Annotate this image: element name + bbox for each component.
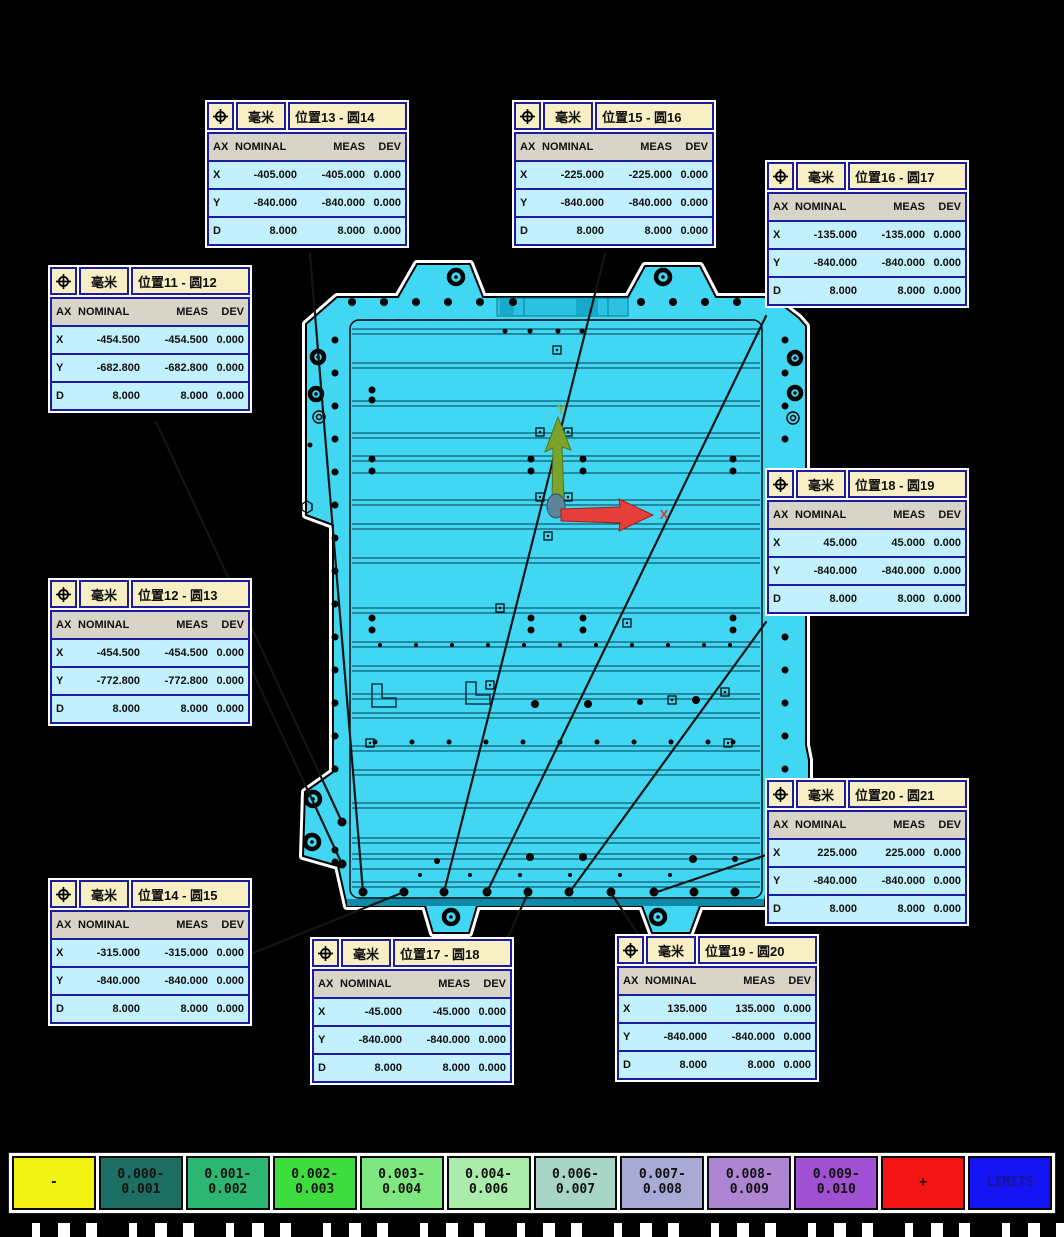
column-header: DEV bbox=[208, 619, 244, 631]
measurement-label-20[interactable]: 毫米位置20 - 圆21AXNOMINALMEASDEVX225.000225.… bbox=[765, 778, 969, 926]
legend-cell[interactable]: 0.008-0.009 bbox=[707, 1156, 791, 1210]
column-header: AX bbox=[773, 819, 795, 831]
column-header: DEV bbox=[925, 509, 961, 521]
value-cell: 8.000 bbox=[857, 593, 925, 605]
column-header: DEV bbox=[672, 141, 708, 153]
table-row: D8.0008.0000.000 bbox=[769, 278, 965, 304]
value-cell: 8.000 bbox=[542, 225, 604, 237]
value-cell: -840.000 bbox=[340, 1034, 402, 1046]
value-cell: 8.000 bbox=[78, 703, 140, 715]
value-cell: 8.000 bbox=[707, 1059, 775, 1071]
position-symbol-cell bbox=[50, 267, 77, 295]
axis-cell: X bbox=[623, 1003, 645, 1015]
label-title: 位置18 - 圆19 bbox=[848, 470, 967, 498]
axis-cell: D bbox=[56, 390, 78, 402]
value-cell: 8.000 bbox=[795, 903, 857, 915]
value-cell: 8.000 bbox=[297, 225, 365, 237]
axis-cell: Y bbox=[56, 975, 78, 987]
value-cell: -454.500 bbox=[78, 647, 140, 659]
position-icon bbox=[55, 886, 72, 903]
label-title: 位置13 - 圆14 bbox=[288, 102, 407, 130]
table-row: D8.0008.0000.000 bbox=[314, 1055, 510, 1081]
table-row: X-454.500-454.5000.000 bbox=[52, 327, 248, 353]
table-row: D8.0008.0000.000 bbox=[52, 696, 248, 722]
table-row: X-135.000-135.0000.000 bbox=[769, 222, 965, 248]
position-symbol-cell bbox=[767, 470, 794, 498]
value-cell: 0.000 bbox=[208, 362, 244, 374]
legend-cell-text: 0.008- bbox=[726, 1168, 773, 1183]
table-row: D8.0008.0000.000 bbox=[209, 218, 405, 244]
value-cell: 8.000 bbox=[78, 390, 140, 402]
column-header: MEAS bbox=[857, 201, 925, 213]
label-table: AXNOMINALMEASDEVX-135.000-135.0000.000Y-… bbox=[767, 192, 967, 306]
column-header: AX bbox=[56, 919, 78, 931]
value-cell: -405.000 bbox=[235, 169, 297, 181]
axis-cell: X bbox=[773, 229, 795, 241]
axis-cell: Y bbox=[56, 362, 78, 374]
table-row: Y-772.800-772.8000.000 bbox=[52, 668, 248, 694]
label-table: AXNOMINALMEASDEVX-225.000-225.0000.000Y-… bbox=[514, 132, 714, 246]
legend-cell-text: 0.007 bbox=[556, 1183, 595, 1198]
measurement-label-12[interactable]: 毫米位置12 - 圆13AXNOMINALMEASDEVX-454.500-45… bbox=[48, 578, 252, 726]
position-symbol-cell bbox=[50, 580, 77, 608]
legend-cell[interactable]: 0.006-0.007 bbox=[534, 1156, 618, 1210]
label-title: 位置16 - 圆17 bbox=[848, 162, 967, 190]
cropped-content-strip bbox=[0, 1223, 1064, 1237]
legend-cell-text: 0.006 bbox=[469, 1183, 508, 1198]
value-cell: -840.000 bbox=[857, 875, 925, 887]
value-cell: 8.000 bbox=[402, 1062, 470, 1074]
legend-cell[interactable]: 0.003-0.004 bbox=[360, 1156, 444, 1210]
column-header: DEV bbox=[365, 141, 401, 153]
axis-cell: D bbox=[773, 285, 795, 297]
column-header: MEAS bbox=[297, 141, 365, 153]
table-row: Y-840.000-840.0000.000 bbox=[619, 1024, 815, 1050]
label-title: 位置19 - 圆20 bbox=[698, 936, 817, 964]
value-cell: -840.000 bbox=[297, 197, 365, 209]
value-cell: 0.000 bbox=[775, 1031, 811, 1043]
axis-cell: Y bbox=[213, 197, 235, 209]
position-icon bbox=[622, 942, 639, 959]
value-cell: -840.000 bbox=[645, 1031, 707, 1043]
value-cell: 0.000 bbox=[775, 1003, 811, 1015]
legend-cell[interactable]: 0.009-0.010 bbox=[794, 1156, 878, 1210]
legend-cell[interactable]: 0.002-0.003 bbox=[273, 1156, 357, 1210]
column-header-row: AXNOMINALMEASDEV bbox=[769, 502, 965, 528]
column-header: MEAS bbox=[707, 975, 775, 987]
value-cell: 8.000 bbox=[857, 285, 925, 297]
value-cell: -840.000 bbox=[857, 257, 925, 269]
position-icon bbox=[519, 108, 536, 125]
position-symbol-cell bbox=[50, 880, 77, 908]
column-header: DEV bbox=[925, 819, 961, 831]
measurement-label-11[interactable]: 毫米位置11 - 圆12AXNOMINALMEASDEVX-454.500-45… bbox=[48, 265, 252, 413]
axis-cell: D bbox=[56, 1003, 78, 1015]
label-title: 位置14 - 圆15 bbox=[131, 880, 250, 908]
value-cell: 8.000 bbox=[78, 1003, 140, 1015]
column-header-row: AXNOMINALMEASDEV bbox=[52, 299, 248, 325]
label-table: AXNOMINALMEASDEVX135.000135.0000.000Y-84… bbox=[617, 966, 817, 1080]
value-cell: -840.000 bbox=[542, 197, 604, 209]
value-cell: 135.000 bbox=[707, 1003, 775, 1015]
value-cell: 45.000 bbox=[795, 537, 857, 549]
value-cell: -840.000 bbox=[140, 975, 208, 987]
label-table: AXNOMINALMEASDEVX45.00045.0000.000Y-840.… bbox=[767, 500, 967, 614]
table-row: X-225.000-225.0000.000 bbox=[516, 162, 712, 188]
column-header-row: AXNOMINALMEASDEV bbox=[314, 971, 510, 997]
label-header: 毫米位置16 - 圆17 bbox=[767, 162, 967, 190]
table-row: X-45.000-45.0000.000 bbox=[314, 999, 510, 1025]
report-canvas: Y X 毫米位置11 - 圆12AXNOMINALMEASDEVX-454.50… bbox=[0, 0, 1064, 1237]
unit-label: 毫米 bbox=[796, 780, 846, 808]
label-table: AXNOMINALMEASDEVX-454.500-454.5000.000Y-… bbox=[50, 610, 250, 724]
column-header: DEV bbox=[208, 919, 244, 931]
legend-cell-text: 0.009- bbox=[813, 1168, 860, 1183]
table-row: Y-840.000-840.0000.000 bbox=[314, 1027, 510, 1053]
unit-label: 毫米 bbox=[79, 880, 129, 908]
axis-cell: D bbox=[520, 225, 542, 237]
label-table: AXNOMINALMEASDEVX-405.000-405.0000.000Y-… bbox=[207, 132, 407, 246]
position-symbol-cell bbox=[207, 102, 234, 130]
value-cell: 8.000 bbox=[645, 1059, 707, 1071]
table-row: D8.0008.0000.000 bbox=[52, 996, 248, 1022]
legend-cell-text: - bbox=[50, 1176, 58, 1191]
value-cell: 0.000 bbox=[925, 875, 961, 887]
unit-label: 毫米 bbox=[646, 936, 696, 964]
axis-cell: Y bbox=[773, 257, 795, 269]
column-header: NOMINAL bbox=[795, 819, 857, 831]
column-header: AX bbox=[318, 978, 340, 990]
label-title: 位置12 - 圆13 bbox=[131, 580, 250, 608]
column-header: NOMINAL bbox=[78, 306, 140, 318]
legend-cell-text: 0.007- bbox=[639, 1168, 686, 1183]
table-row: X-315.000-315.0000.000 bbox=[52, 940, 248, 966]
measurement-label-18[interactable]: 毫米位置18 - 圆19AXNOMINALMEASDEVX45.00045.00… bbox=[765, 468, 969, 616]
column-header: AX bbox=[56, 306, 78, 318]
label-title: 位置15 - 圆16 bbox=[595, 102, 714, 130]
value-cell: 8.000 bbox=[340, 1062, 402, 1074]
value-cell: -840.000 bbox=[795, 875, 857, 887]
unit-label: 毫米 bbox=[796, 470, 846, 498]
legend-cell-text: + bbox=[919, 1176, 927, 1191]
axis-cell: Y bbox=[623, 1031, 645, 1043]
legend-cell-text: 0.006- bbox=[552, 1168, 599, 1183]
label-header: 毫米位置20 - 圆21 bbox=[767, 780, 967, 808]
position-icon bbox=[772, 476, 789, 493]
table-row: X45.00045.0000.000 bbox=[769, 530, 965, 556]
value-cell: 0.000 bbox=[672, 197, 708, 209]
axis-cell: Y bbox=[318, 1034, 340, 1046]
value-cell: 0.000 bbox=[925, 537, 961, 549]
legend-cell-text: 0.009 bbox=[730, 1183, 769, 1198]
part-bottom-band bbox=[347, 899, 764, 906]
table-row: D8.0008.0000.000 bbox=[769, 586, 965, 612]
label-header: 毫米位置17 - 圆18 bbox=[312, 939, 512, 967]
axis-cell: D bbox=[56, 703, 78, 715]
column-header: AX bbox=[773, 509, 795, 521]
axis-cell: D bbox=[773, 593, 795, 605]
position-icon bbox=[772, 168, 789, 185]
value-cell: -135.000 bbox=[857, 229, 925, 241]
value-cell: 135.000 bbox=[645, 1003, 707, 1015]
measurement-label-14[interactable]: 毫米位置14 - 圆15AXNOMINALMEASDEVX-315.000-31… bbox=[48, 878, 252, 1026]
position-symbol-cell bbox=[514, 102, 541, 130]
value-cell: 225.000 bbox=[857, 847, 925, 859]
value-cell: 225.000 bbox=[795, 847, 857, 859]
column-header: MEAS bbox=[140, 619, 208, 631]
value-cell: 0.000 bbox=[365, 169, 401, 181]
axis-cell: X bbox=[773, 537, 795, 549]
legend-cell-text: 0.002 bbox=[208, 1183, 247, 1198]
legend-cell-text: 0.008 bbox=[643, 1183, 682, 1198]
table-row: D8.0008.0000.000 bbox=[769, 896, 965, 922]
column-header: MEAS bbox=[857, 819, 925, 831]
position-icon bbox=[212, 108, 229, 125]
label-title: 位置17 - 圆18 bbox=[393, 939, 512, 967]
value-cell: 0.000 bbox=[365, 225, 401, 237]
column-header: DEV bbox=[470, 978, 506, 990]
value-cell: 8.000 bbox=[140, 1003, 208, 1015]
measurement-label-17[interactable]: 毫米位置17 - 圆18AXNOMINALMEASDEVX-45.000-45.… bbox=[310, 937, 514, 1085]
value-cell: 0.000 bbox=[672, 169, 708, 181]
value-cell: -682.800 bbox=[78, 362, 140, 374]
value-cell: -840.000 bbox=[795, 565, 857, 577]
value-cell: 8.000 bbox=[795, 285, 857, 297]
value-cell: -840.000 bbox=[604, 197, 672, 209]
column-header: MEAS bbox=[857, 509, 925, 521]
position-symbol-cell bbox=[767, 780, 794, 808]
y-axis-label: Y bbox=[556, 401, 566, 417]
table-row: D8.0008.0000.000 bbox=[516, 218, 712, 244]
column-header: DEV bbox=[208, 306, 244, 318]
position-symbol-cell bbox=[312, 939, 339, 967]
value-cell: 0.000 bbox=[925, 565, 961, 577]
color-scale-legend: -0.000-0.0010.001-0.0020.002-0.0030.003-… bbox=[8, 1152, 1056, 1214]
value-cell: -772.800 bbox=[78, 675, 140, 687]
label-header: 毫米位置13 - 圆14 bbox=[207, 102, 407, 130]
legend-cell-text: 0.001 bbox=[121, 1183, 160, 1198]
position-icon bbox=[317, 945, 334, 962]
column-header: AX bbox=[213, 141, 235, 153]
legend-cell-text: 0.010 bbox=[817, 1183, 856, 1198]
axis-cell: D bbox=[318, 1062, 340, 1074]
value-cell: -405.000 bbox=[297, 169, 365, 181]
label-title: 位置20 - 圆21 bbox=[848, 780, 967, 808]
column-header: AX bbox=[773, 201, 795, 213]
value-cell: 0.000 bbox=[208, 947, 244, 959]
axis-cell: D bbox=[213, 225, 235, 237]
legend-cell[interactable]: 0.001-0.002 bbox=[186, 1156, 270, 1210]
legend-cell-text: 0.002- bbox=[291, 1168, 338, 1183]
column-header: MEAS bbox=[402, 978, 470, 990]
unit-label: 毫米 bbox=[543, 102, 593, 130]
column-header: DEV bbox=[925, 201, 961, 213]
value-cell: -454.500 bbox=[140, 334, 208, 346]
column-header-row: AXNOMINALMEASDEV bbox=[52, 612, 248, 638]
value-cell: 0.000 bbox=[208, 390, 244, 402]
axis-cell: Y bbox=[773, 875, 795, 887]
column-header: AX bbox=[520, 141, 542, 153]
measurement-label-15[interactable]: 毫米位置15 - 圆16AXNOMINALMEASDEVX-225.000-22… bbox=[512, 100, 716, 248]
measurement-label-19[interactable]: 毫米位置19 - 圆20AXNOMINALMEASDEVX135.000135.… bbox=[615, 934, 819, 1082]
value-cell: 0.000 bbox=[925, 847, 961, 859]
legend-cell[interactable]: - bbox=[12, 1156, 96, 1210]
value-cell: 0.000 bbox=[208, 1003, 244, 1015]
column-header-row: AXNOMINALMEASDEV bbox=[52, 912, 248, 938]
value-cell: -454.500 bbox=[140, 647, 208, 659]
column-header: NOMINAL bbox=[645, 975, 707, 987]
axis-cell: X bbox=[213, 169, 235, 181]
column-header: DEV bbox=[775, 975, 811, 987]
table-row: D8.0008.0000.000 bbox=[619, 1052, 815, 1078]
value-cell: 8.000 bbox=[795, 593, 857, 605]
label-header: 毫米位置18 - 圆19 bbox=[767, 470, 967, 498]
table-row: X225.000225.0000.000 bbox=[769, 840, 965, 866]
value-cell: 0.000 bbox=[470, 1034, 506, 1046]
legend-cell-text: 0.000- bbox=[117, 1168, 164, 1183]
column-header: NOMINAL bbox=[542, 141, 604, 153]
value-cell: 0.000 bbox=[208, 675, 244, 687]
axis-cell: D bbox=[773, 903, 795, 915]
axis-cell: Y bbox=[773, 565, 795, 577]
column-header: MEAS bbox=[140, 306, 208, 318]
label-header: 毫米位置14 - 圆15 bbox=[50, 880, 250, 908]
table-row: Y-840.000-840.0000.000 bbox=[769, 558, 965, 584]
unit-label: 毫米 bbox=[79, 267, 129, 295]
value-cell: 8.000 bbox=[604, 225, 672, 237]
value-cell: 0.000 bbox=[208, 647, 244, 659]
column-header: NOMINAL bbox=[78, 919, 140, 931]
value-cell: 0.000 bbox=[775, 1059, 811, 1071]
value-cell: 8.000 bbox=[235, 225, 297, 237]
axis-cell: X bbox=[56, 334, 78, 346]
legend-cell-text: 0.004 bbox=[382, 1183, 421, 1198]
table-row: D8.0008.0000.000 bbox=[52, 383, 248, 409]
measurement-label-13[interactable]: 毫米位置13 - 圆14AXNOMINALMEASDEVX-405.000-40… bbox=[205, 100, 409, 248]
label-header: 毫米位置19 - 圆20 bbox=[617, 936, 817, 964]
label-table: AXNOMINALMEASDEVX-315.000-315.0000.000Y-… bbox=[50, 910, 250, 1024]
legend-cell-text: 0.004- bbox=[465, 1168, 512, 1183]
value-cell: 0.000 bbox=[208, 703, 244, 715]
label-header: 毫米位置12 - 圆13 bbox=[50, 580, 250, 608]
value-cell: 0.000 bbox=[925, 285, 961, 297]
axis-cell: X bbox=[56, 947, 78, 959]
column-header-row: AXNOMINALMEASDEV bbox=[769, 812, 965, 838]
label-header: 毫米位置15 - 圆16 bbox=[514, 102, 714, 130]
value-cell: -840.000 bbox=[795, 257, 857, 269]
column-header-row: AXNOMINALMEASDEV bbox=[769, 194, 965, 220]
value-cell: -225.000 bbox=[542, 169, 604, 181]
column-header: NOMINAL bbox=[795, 509, 857, 521]
legend-cell[interactable]: 0.000-0.001 bbox=[99, 1156, 183, 1210]
legend-cell[interactable]: 0.004-0.006 bbox=[447, 1156, 531, 1210]
value-cell: -225.000 bbox=[604, 169, 672, 181]
table-row: X135.000135.0000.000 bbox=[619, 996, 815, 1022]
value-cell: 0.000 bbox=[470, 1006, 506, 1018]
legend-cell-text: 0.001- bbox=[204, 1168, 251, 1183]
column-header-row: AXNOMINALMEASDEV bbox=[209, 134, 405, 160]
position-symbol-cell bbox=[767, 162, 794, 190]
legend-cell[interactable]: 0.007-0.008 bbox=[620, 1156, 704, 1210]
unit-label: 毫米 bbox=[79, 580, 129, 608]
column-header: NOMINAL bbox=[795, 201, 857, 213]
value-cell: 0.000 bbox=[672, 225, 708, 237]
x-axis-label: X bbox=[660, 507, 669, 522]
table-row: Y-840.000-840.0000.000 bbox=[516, 190, 712, 216]
value-cell: -45.000 bbox=[340, 1006, 402, 1018]
value-cell: -315.000 bbox=[78, 947, 140, 959]
legend-cell-text: 0.003 bbox=[295, 1183, 334, 1198]
value-cell: 0.000 bbox=[925, 229, 961, 241]
column-header: NOMINAL bbox=[235, 141, 297, 153]
value-cell: 8.000 bbox=[857, 903, 925, 915]
table-row: X-405.000-405.0000.000 bbox=[209, 162, 405, 188]
value-cell: -454.500 bbox=[78, 334, 140, 346]
value-cell: 8.000 bbox=[140, 390, 208, 402]
axis-cell: X bbox=[520, 169, 542, 181]
value-cell: -772.800 bbox=[140, 675, 208, 687]
value-cell: -315.000 bbox=[140, 947, 208, 959]
table-row: Y-840.000-840.0000.000 bbox=[209, 190, 405, 216]
table-row: Y-840.000-840.0000.000 bbox=[769, 250, 965, 276]
value-cell: 0.000 bbox=[925, 903, 961, 915]
column-header: NOMINAL bbox=[78, 619, 140, 631]
value-cell: -840.000 bbox=[857, 565, 925, 577]
position-symbol-cell bbox=[617, 936, 644, 964]
value-cell: -135.000 bbox=[795, 229, 857, 241]
value-cell: 0.000 bbox=[925, 257, 961, 269]
label-table: AXNOMINALMEASDEVX-454.500-454.5000.000Y-… bbox=[50, 297, 250, 411]
value-cell: -682.800 bbox=[140, 362, 208, 374]
column-header: MEAS bbox=[604, 141, 672, 153]
value-cell: 0.000 bbox=[208, 334, 244, 346]
legend-cell[interactable]: + bbox=[881, 1156, 965, 1210]
unit-label: 毫米 bbox=[341, 939, 391, 967]
position-icon bbox=[772, 786, 789, 803]
value-cell: 0.000 bbox=[470, 1062, 506, 1074]
table-row: Y-682.800-682.8000.000 bbox=[52, 355, 248, 381]
legend-cell[interactable]: LIMITS bbox=[968, 1156, 1052, 1210]
table-row: Y-840.000-840.0000.000 bbox=[769, 868, 965, 894]
unit-label: 毫米 bbox=[236, 102, 286, 130]
axis-cell: Y bbox=[520, 197, 542, 209]
column-header: AX bbox=[56, 619, 78, 631]
label-table: AXNOMINALMEASDEVX225.000225.0000.000Y-84… bbox=[767, 810, 967, 924]
table-row: Y-840.000-840.0000.000 bbox=[52, 968, 248, 994]
label-title: 位置11 - 圆12 bbox=[131, 267, 250, 295]
value-cell: 0.000 bbox=[208, 975, 244, 987]
table-row: X-454.500-454.5000.000 bbox=[52, 640, 248, 666]
label-header: 毫米位置11 - 圆12 bbox=[50, 267, 250, 295]
value-cell: -840.000 bbox=[402, 1034, 470, 1046]
label-table: AXNOMINALMEASDEVX-45.000-45.0000.000Y-84… bbox=[312, 969, 512, 1083]
unit-label: 毫米 bbox=[796, 162, 846, 190]
axis-cell: X bbox=[56, 647, 78, 659]
value-cell: 8.000 bbox=[140, 703, 208, 715]
column-header: AX bbox=[623, 975, 645, 987]
axis-cell: D bbox=[623, 1059, 645, 1071]
axis-cell: X bbox=[318, 1006, 340, 1018]
measurement-label-16[interactable]: 毫米位置16 - 圆17AXNOMINALMEASDEVX-135.000-13… bbox=[765, 160, 969, 308]
value-cell: 0.000 bbox=[925, 593, 961, 605]
value-cell: -840.000 bbox=[707, 1031, 775, 1043]
column-header-row: AXNOMINALMEASDEV bbox=[619, 968, 815, 994]
column-header-row: AXNOMINALMEASDEV bbox=[516, 134, 712, 160]
legend-cell-text: LIMITS bbox=[987, 1176, 1034, 1191]
value-cell: -840.000 bbox=[235, 197, 297, 209]
column-header: MEAS bbox=[140, 919, 208, 931]
value-cell: -45.000 bbox=[402, 1006, 470, 1018]
